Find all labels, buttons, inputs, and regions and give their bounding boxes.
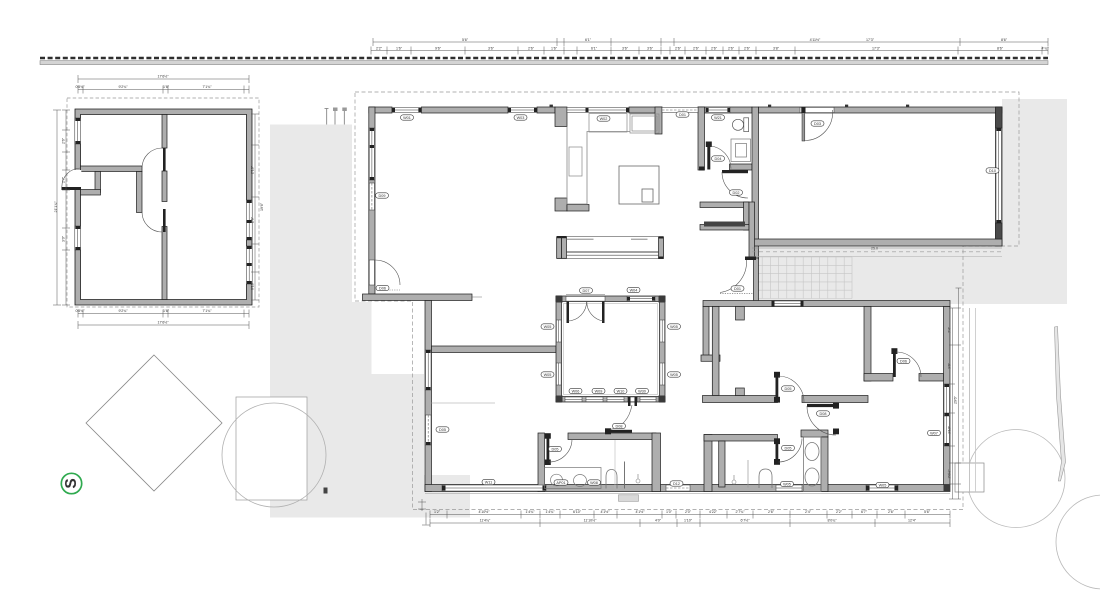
svg-text:D03: D03: [814, 122, 821, 126]
svg-text:D06: D06: [900, 359, 907, 363]
svg-text:1'10": 1'10": [684, 519, 693, 523]
svg-text:2'6": 2'6": [728, 47, 735, 51]
svg-text:8'6": 8'6": [997, 47, 1004, 51]
svg-text:S: S: [63, 478, 80, 488]
svg-text:4'1½": 4'1½": [636, 510, 646, 514]
svg-text:11'10½": 11'10½": [584, 519, 597, 523]
svg-text:W02: W02: [600, 117, 608, 121]
svg-text:D08: D08: [616, 424, 623, 428]
svg-text:1'6": 1'6": [163, 309, 170, 313]
svg-text:1'4¾": 1'4¾": [526, 510, 536, 514]
svg-text:1'6": 1'6": [551, 47, 558, 51]
svg-text:0'10": 0'10": [251, 281, 255, 290]
svg-text:W10: W10: [617, 389, 625, 393]
svg-text:2'6": 2'6": [675, 47, 682, 51]
svg-text:17'6½": 17'6½": [158, 321, 170, 325]
svg-text:3'6": 3'6": [488, 47, 495, 51]
svg-text:W05: W05: [544, 325, 552, 329]
svg-text:4'1½": 4'1½": [601, 510, 611, 514]
svg-text:D01: D01: [734, 287, 741, 291]
svg-text:D08: D08: [820, 412, 827, 416]
svg-text:4'11½": 4'11½": [810, 38, 821, 42]
svg-text:W05: W05: [670, 373, 678, 377]
svg-text:4'22": 4'22": [709, 510, 718, 514]
svg-text:W09: W09: [595, 389, 603, 393]
svg-text:1'2": 1'2": [434, 510, 441, 514]
svg-text:9'2¾": 9'2¾": [119, 309, 129, 313]
svg-text:2'6": 2'6": [888, 510, 895, 514]
svg-text:5'6": 5'6": [924, 510, 931, 514]
svg-text:4'10½": 4'10½": [479, 510, 491, 514]
svg-text:2'6": 2'6": [62, 137, 66, 144]
svg-text:9'6": 9'6": [435, 47, 442, 51]
svg-text:1'6": 1'6": [396, 47, 403, 51]
svg-text:2'6": 2'6": [768, 510, 775, 514]
svg-text:D02: D02: [733, 191, 740, 195]
svg-text:12'4": 12'4": [908, 519, 917, 523]
svg-text:2'10": 2'10": [251, 165, 255, 174]
svg-text:17'6½": 17'6½": [158, 75, 170, 79]
svg-text:W05: W05: [879, 483, 887, 487]
svg-text:D05: D05: [552, 447, 559, 451]
svg-text:W07: W07: [930, 431, 938, 435]
svg-text:11'4¾": 11'4¾": [480, 519, 491, 523]
svg-text:D09: D09: [379, 194, 386, 198]
svg-text:W04: W04: [630, 288, 638, 292]
svg-text:7'1¾": 7'1¾": [203, 309, 213, 313]
svg-text:W01: W01: [403, 116, 411, 120]
svg-text:6'1": 6'1": [591, 47, 598, 51]
svg-text:3'8": 3'8": [773, 47, 780, 51]
svg-text:W05: W05: [544, 373, 552, 377]
svg-text:W05: W05: [783, 482, 791, 486]
svg-text:2'4": 2'4": [805, 510, 812, 514]
svg-text:4'¾": 4'¾": [1042, 47, 1050, 51]
svg-text:D10: D10: [989, 169, 996, 173]
svg-text:W05: W05: [670, 325, 678, 329]
svg-text:0'5¾": 0'5¾": [76, 85, 86, 89]
svg-text:2'0½": 2'0½": [948, 469, 952, 479]
svg-text:6'10": 6'10": [573, 510, 582, 514]
svg-text:D01: D01: [679, 113, 686, 117]
svg-text:5'6": 5'6": [462, 38, 469, 42]
svg-text:W06: W06: [572, 389, 580, 393]
svg-text:7'4": 7'4": [948, 326, 952, 333]
svg-text:AP01: AP01: [556, 481, 565, 485]
svg-text:2'6": 2'6": [251, 216, 255, 223]
svg-text:25.0: 25.0: [871, 247, 878, 251]
svg-text:1'6": 1'6": [163, 85, 170, 89]
svg-text:2'2": 2'2": [836, 510, 843, 514]
svg-text:6'7": 6'7": [861, 510, 868, 514]
svg-text:3'6": 3'6": [622, 47, 629, 51]
svg-text:2'10": 2'10": [948, 425, 952, 434]
svg-text:D07: D07: [583, 289, 590, 293]
svg-text:D12: D12: [673, 482, 680, 486]
svg-text:D05: D05: [785, 387, 792, 391]
svg-text:2'7": 2'7": [62, 176, 66, 183]
svg-text:2'2": 2'2": [376, 47, 383, 51]
svg-text:W03: W03: [517, 116, 525, 120]
svg-text:4'0": 4'0": [655, 519, 662, 523]
svg-text:2'6": 2'6": [744, 47, 751, 51]
svg-text:9'2¾": 9'2¾": [119, 85, 129, 89]
svg-text:1'0": 1'0": [666, 510, 673, 514]
svg-text:7'1¾": 7'1¾": [203, 85, 213, 89]
svg-text:D05: D05: [439, 428, 446, 432]
svg-text:8'6": 8'6": [1001, 38, 1008, 42]
svg-text:W08: W08: [590, 481, 598, 485]
svg-text:D04: D04: [715, 157, 722, 161]
svg-text:17'3": 17'3": [866, 38, 875, 42]
svg-text:1'4¾": 1'4¾": [546, 510, 556, 514]
svg-text:2'6": 2'6": [693, 47, 700, 51]
svg-text:D05: D05: [785, 446, 792, 450]
svg-text:19'6": 19'6": [260, 202, 264, 211]
svg-text:17'3": 17'3": [872, 47, 881, 51]
svg-text:2'6": 2'6": [528, 47, 535, 51]
svg-text:3'6": 3'6": [948, 362, 952, 369]
svg-text:3'6": 3'6": [647, 47, 654, 51]
svg-text:W21: W21: [714, 116, 722, 120]
svg-text:2'6": 2'6": [711, 47, 718, 51]
svg-text:29'6": 29'6": [954, 395, 958, 404]
svg-text:W11: W11: [485, 480, 493, 484]
svg-text:3'0": 3'0": [62, 235, 66, 242]
svg-text:2'0": 2'0": [685, 510, 692, 514]
svg-text:2'7¾": 2'7¾": [736, 510, 746, 514]
svg-text:6'1": 6'1": [585, 38, 592, 42]
svg-text:8'0¾": 8'0¾": [828, 519, 838, 523]
svg-text:21'1⅞": 21'1⅞": [54, 201, 58, 213]
svg-text:D06: D06: [379, 286, 386, 290]
svg-text:W30: W30: [638, 389, 646, 393]
svg-text:0'5¾": 0'5¾": [76, 309, 86, 313]
svg-text:6'7½": 6'7½": [741, 519, 751, 523]
